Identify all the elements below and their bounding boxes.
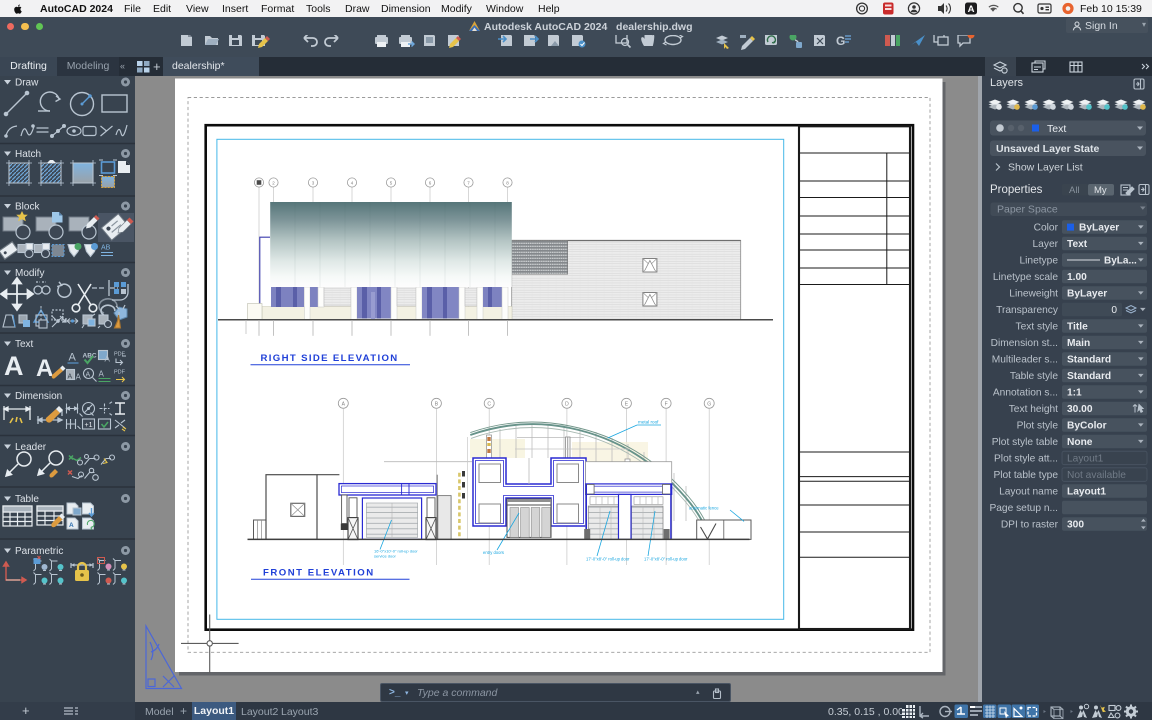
svg-text:Dimension st...: Dimension st... bbox=[991, 338, 1058, 349]
svg-text:Paper Space: Paper Space bbox=[997, 204, 1058, 216]
svg-text:G: G bbox=[707, 401, 711, 407]
svg-text:Block: Block bbox=[15, 202, 40, 213]
svg-text:+1: +1 bbox=[85, 422, 93, 429]
svg-text:Multileader s...: Multileader s... bbox=[992, 355, 1058, 366]
svg-text:Layout name: Layout name bbox=[999, 487, 1058, 498]
svg-text:ABC: ABC bbox=[83, 353, 97, 360]
svg-text:Dimension: Dimension bbox=[15, 391, 62, 402]
svg-text:entry doors: entry doors bbox=[483, 550, 504, 555]
svg-text:1:1: 1:1 bbox=[1067, 388, 1082, 399]
svg-text:Title: Title bbox=[1067, 322, 1088, 333]
svg-text:All: All bbox=[1069, 185, 1080, 196]
svg-text:Text height: Text height bbox=[1009, 404, 1058, 415]
svg-text:D: D bbox=[565, 401, 569, 407]
svg-text:A: A bbox=[68, 374, 73, 381]
svg-text:Unsaved Layer State: Unsaved Layer State bbox=[996, 143, 1099, 155]
svg-text:Plot table type: Plot table type bbox=[993, 470, 1058, 481]
svg-text:Plot style: Plot style bbox=[1017, 421, 1059, 432]
svg-text:17'-0"x8'-0" roll-up door: 17'-0"x8'-0" roll-up door bbox=[586, 557, 630, 562]
svg-text:A: A bbox=[36, 355, 53, 382]
svg-text:ByColor: ByColor bbox=[1067, 421, 1107, 432]
svg-text:A: A bbox=[69, 352, 77, 364]
svg-text:300: 300 bbox=[1067, 520, 1084, 531]
svg-text:RIGHT SIDE ELEVATION: RIGHT SIDE ELEVATION bbox=[261, 353, 399, 364]
svg-text:Show Layer List: Show Layer List bbox=[1008, 162, 1083, 174]
svg-text:Linetype: Linetype bbox=[1019, 256, 1058, 267]
svg-text:Table style: Table style bbox=[1010, 371, 1058, 382]
svg-text:Table: Table bbox=[15, 494, 39, 505]
svg-text:Layer: Layer bbox=[1033, 239, 1059, 250]
svg-text:Layout1: Layout1 bbox=[1067, 454, 1104, 465]
svg-text:Text: Text bbox=[1047, 123, 1066, 135]
svg-text:Plot style table: Plot style table bbox=[992, 437, 1059, 448]
svg-text:Layers: Layers bbox=[990, 77, 1024, 89]
svg-text:My: My bbox=[1094, 185, 1107, 196]
svg-text:metal roof: metal roof bbox=[638, 420, 659, 425]
svg-text:A: A bbox=[99, 370, 105, 379]
svg-text:service door: service door bbox=[374, 554, 396, 559]
svg-text:Transparency: Transparency bbox=[996, 305, 1059, 316]
svg-text:Text style: Text style bbox=[1016, 322, 1059, 333]
svg-text:Hatch: Hatch bbox=[15, 149, 41, 160]
svg-text:AB: AB bbox=[101, 245, 111, 252]
svg-text:17'-0"x8'-0" roll-up door: 17'-0"x8'-0" roll-up door bbox=[644, 557, 688, 562]
svg-text:Text: Text bbox=[15, 339, 34, 350]
svg-text:0: 0 bbox=[1111, 305, 1117, 316]
svg-text:F: F bbox=[665, 401, 668, 407]
svg-text:ByLa...: ByLa... bbox=[1104, 256, 1137, 267]
svg-text:None: None bbox=[1067, 437, 1093, 448]
svg-text:Not available: Not available bbox=[1067, 470, 1126, 481]
svg-text:A: A bbox=[105, 355, 111, 364]
svg-text:Color: Color bbox=[1034, 223, 1059, 234]
svg-text:A: A bbox=[4, 351, 24, 381]
svg-text:Modify: Modify bbox=[15, 268, 44, 279]
svg-text:Main: Main bbox=[1067, 338, 1090, 349]
svg-text:ByLayer: ByLayer bbox=[1067, 289, 1107, 300]
svg-text:A: A bbox=[69, 522, 74, 529]
svg-text:Layout1: Layout1 bbox=[1067, 487, 1106, 498]
svg-text:PDF: PDF bbox=[114, 370, 126, 376]
svg-text:A: A bbox=[968, 4, 975, 15]
svg-text:C: C bbox=[487, 401, 491, 407]
svg-text:1.00: 1.00 bbox=[1067, 272, 1087, 283]
svg-text:A: A bbox=[86, 372, 91, 379]
svg-text:FRONT ELEVATION: FRONT ELEVATION bbox=[263, 568, 375, 579]
svg-text:G: G bbox=[836, 35, 845, 48]
svg-text:PDF: PDF bbox=[114, 352, 126, 358]
svg-text:Parametric: Parametric bbox=[15, 546, 63, 557]
svg-text:ByLayer: ByLayer bbox=[1079, 223, 1119, 234]
svg-text:Draw: Draw bbox=[15, 78, 39, 89]
svg-text:DPI to raster: DPI to raster bbox=[1001, 520, 1059, 531]
svg-text:automatic fence: automatic fence bbox=[689, 506, 719, 511]
svg-text:30.00: 30.00 bbox=[1067, 404, 1093, 415]
svg-text:Lineweight: Lineweight bbox=[1009, 289, 1058, 300]
svg-text:Linetype scale: Linetype scale bbox=[993, 272, 1058, 283]
svg-text:Plot style att...: Plot style att... bbox=[994, 454, 1058, 465]
svg-text:Annotation s...: Annotation s... bbox=[993, 388, 1058, 399]
svg-text:Standard: Standard bbox=[1067, 371, 1111, 382]
svg-text:Page setup n...: Page setup n... bbox=[989, 503, 1058, 514]
svg-text:Text: Text bbox=[1067, 239, 1088, 250]
svg-text:Leader: Leader bbox=[15, 442, 47, 453]
svg-text:Properties: Properties bbox=[990, 184, 1043, 196]
svg-text:A: A bbox=[76, 373, 82, 382]
svg-text:Standard: Standard bbox=[1067, 355, 1111, 366]
